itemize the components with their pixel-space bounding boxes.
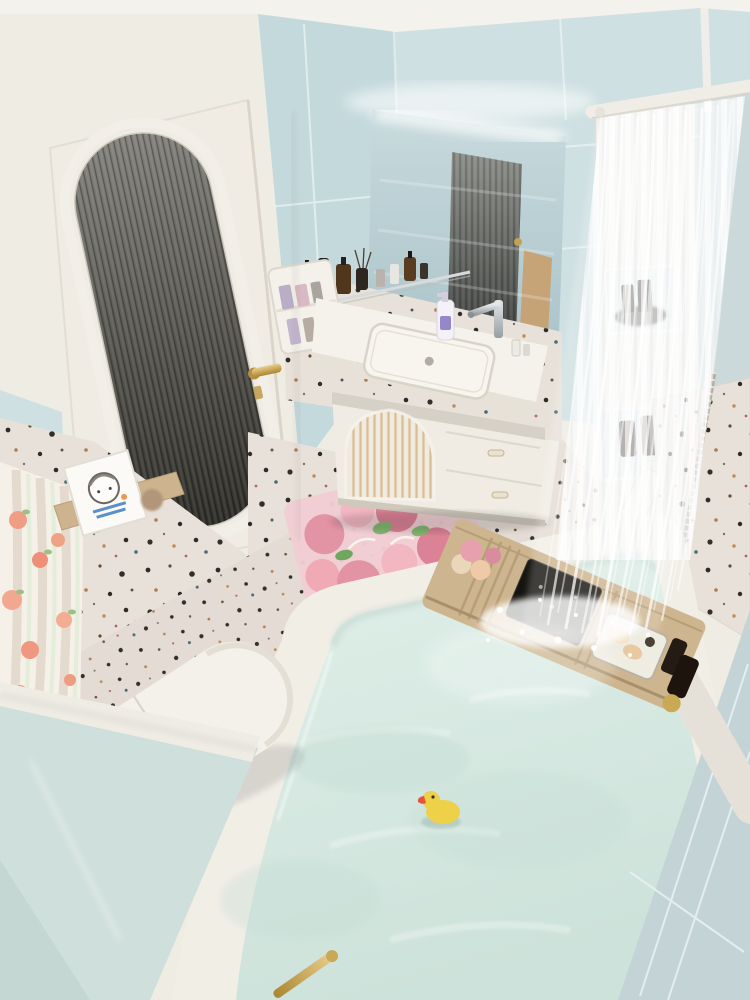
bathroom-scene	[0, 0, 750, 1000]
peach-shower-curtain	[0, 462, 84, 716]
drawer-handle	[492, 492, 508, 498]
drawer-handle	[488, 450, 504, 456]
counter-bottle	[523, 344, 530, 356]
rod-bracket	[595, 107, 605, 117]
mirror-reflection-wood	[520, 250, 552, 336]
plush-ornament	[141, 489, 163, 511]
counter-bottle	[512, 340, 520, 356]
white-bottle	[390, 264, 399, 284]
duck-eye	[431, 795, 434, 798]
small-bottle	[420, 263, 428, 279]
bathroom-render	[0, 0, 750, 1000]
gray-bottle	[376, 269, 385, 287]
